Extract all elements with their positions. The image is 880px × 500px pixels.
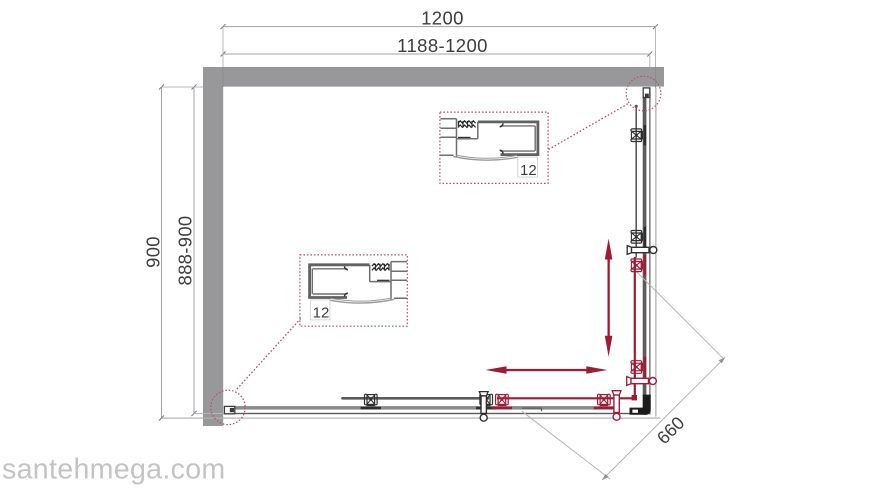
svg-text:888-900: 888-900: [174, 216, 195, 286]
svg-text:1200: 1200: [421, 8, 464, 29]
svg-text:santehmega.com: santehmega.com: [2, 454, 226, 486]
svg-text:12: 12: [313, 305, 330, 322]
svg-text:12: 12: [520, 162, 537, 179]
svg-text:1188-1200: 1188-1200: [397, 35, 488, 56]
svg-text:900: 900: [143, 236, 164, 268]
